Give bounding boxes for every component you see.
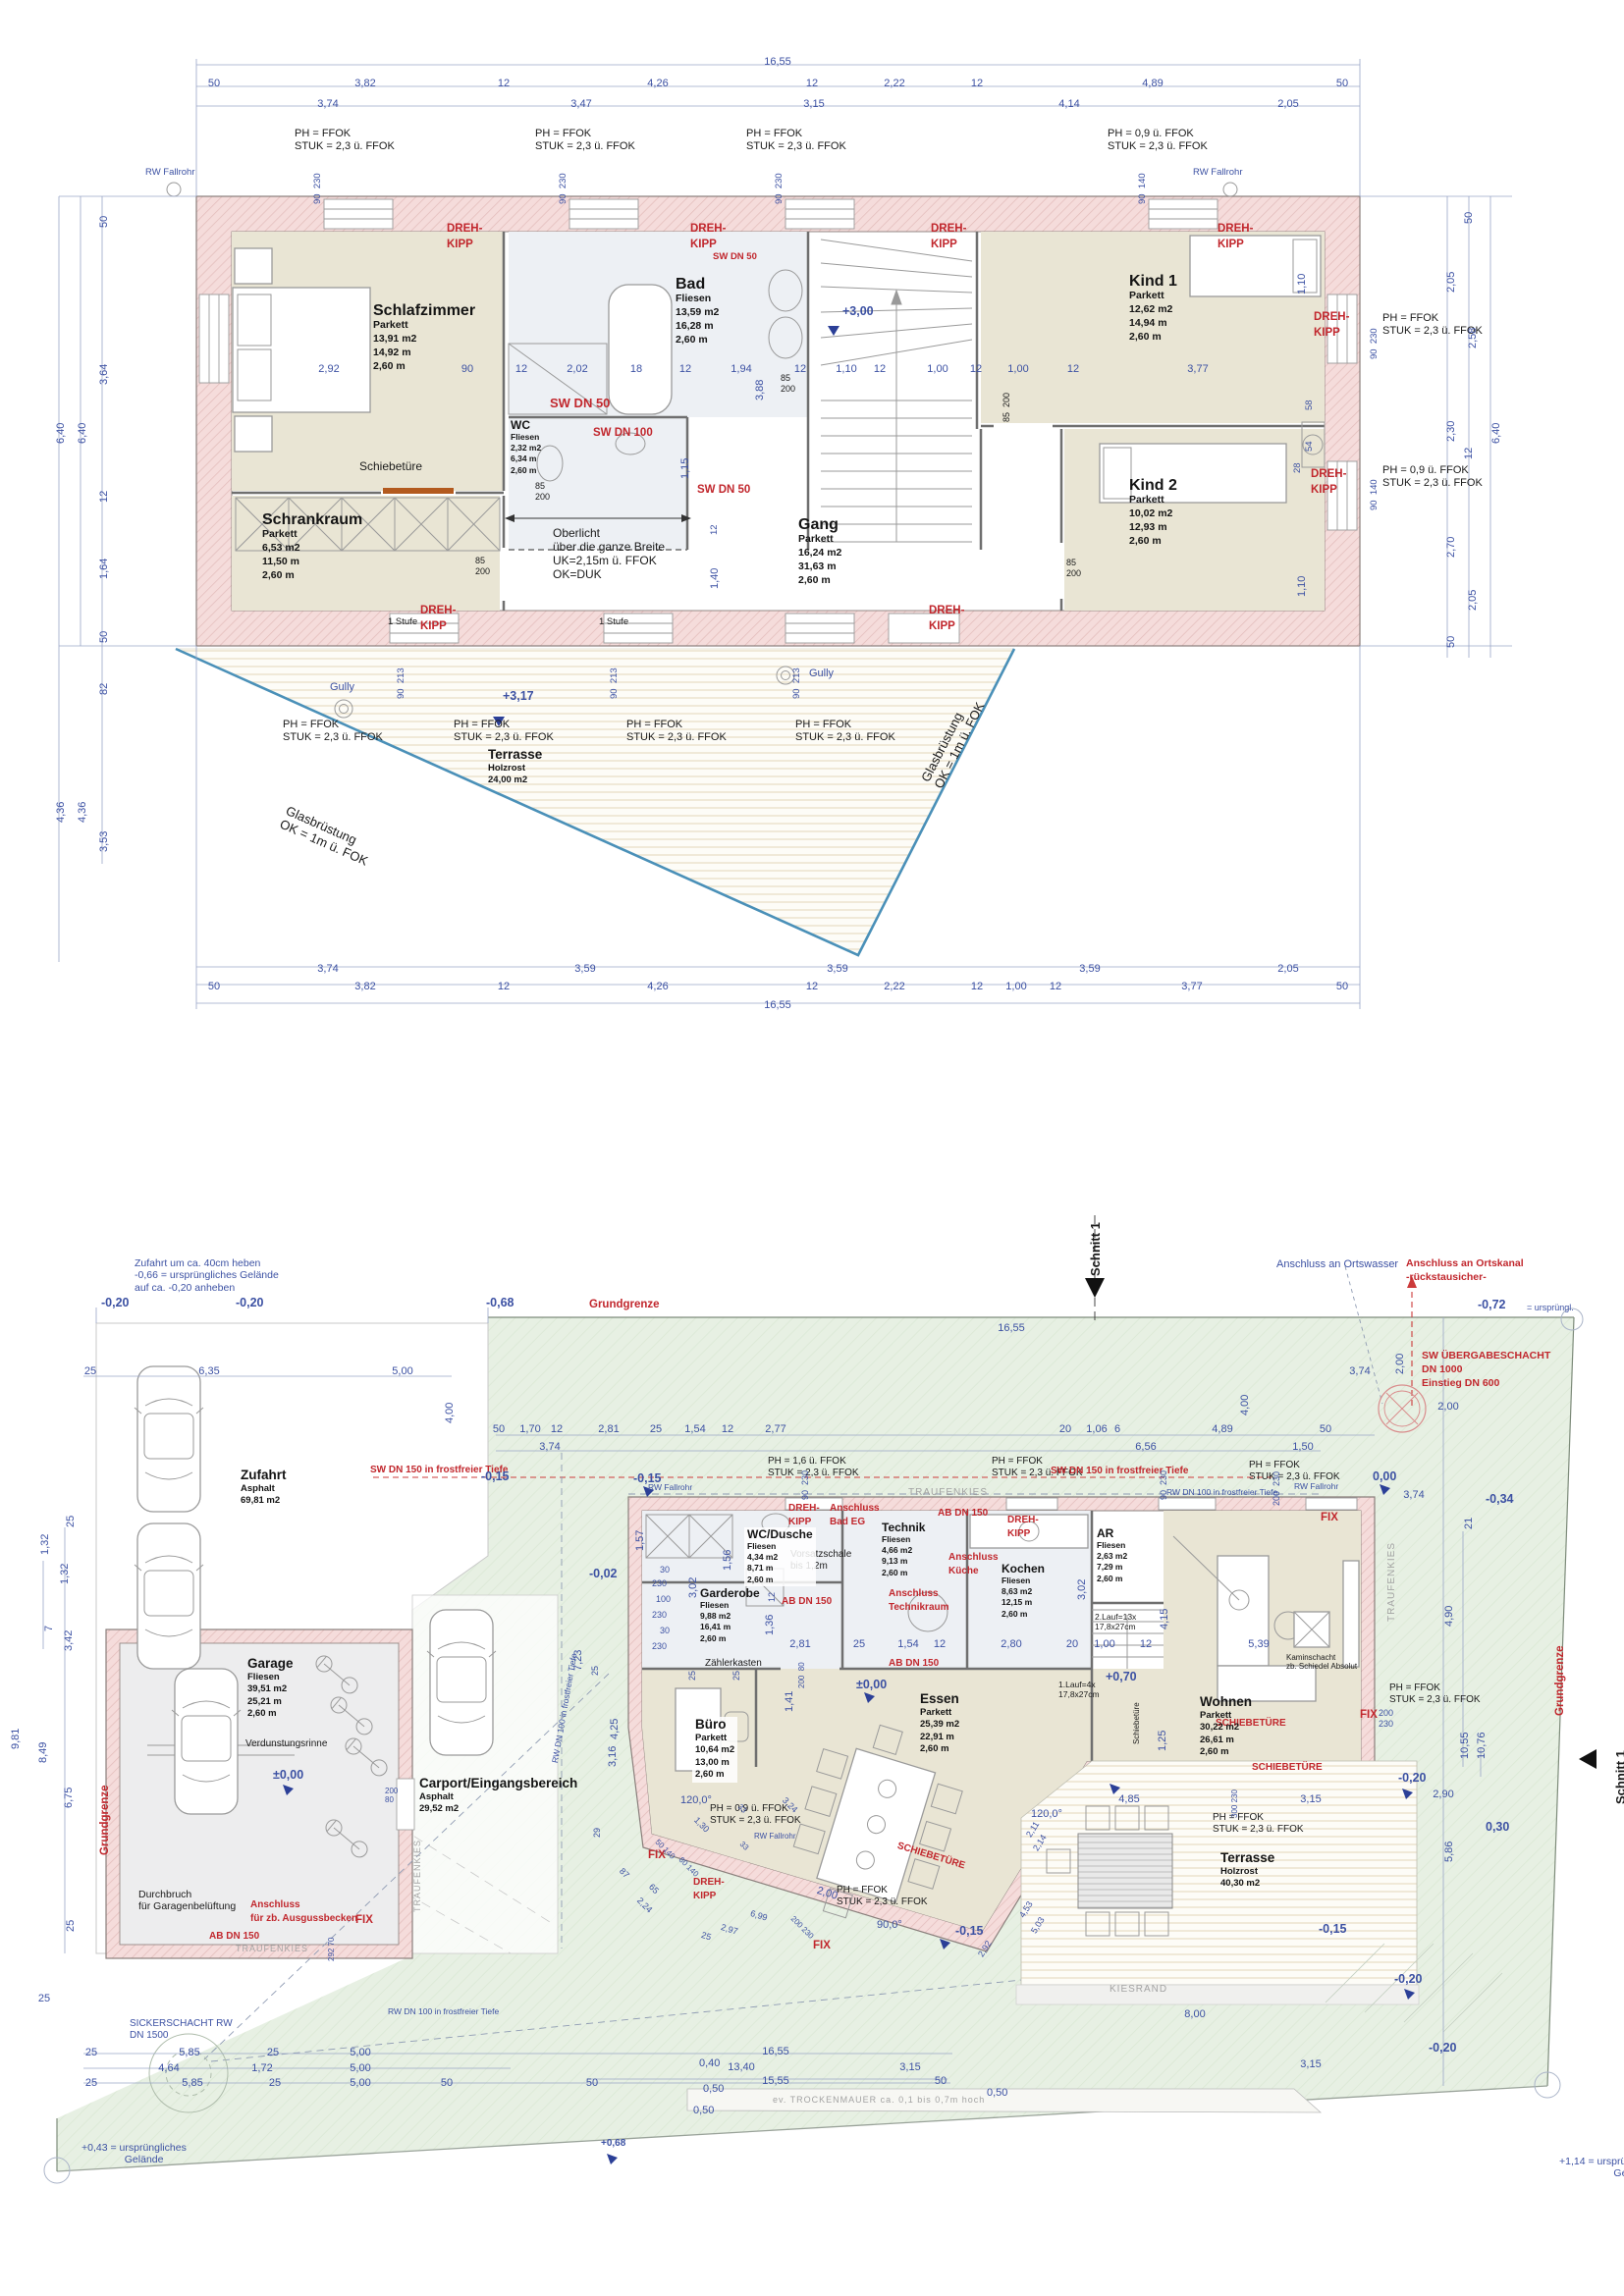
- room-name: Garderobe: [700, 1587, 760, 1600]
- room-spec: 10,64 m2: [695, 1744, 734, 1757]
- level: +0,68: [601, 2138, 625, 2150]
- trockenmauer: ev. TROCKENMAUER ca. 0,1 bis 0,7m hoch: [773, 2095, 985, 2106]
- room-name: Wohnen: [1200, 1695, 1252, 1710]
- dim: 200 230: [1272, 1471, 1282, 1506]
- dim: 2,70: [1445, 537, 1458, 558]
- room-spec: 31,63 m: [798, 561, 841, 574]
- level: -0,15: [481, 1469, 510, 1484]
- dim: 3,42: [63, 1630, 76, 1651]
- dim: 5,85: [182, 2077, 202, 2090]
- dim: 25: [85, 2047, 97, 2059]
- dim: 50: [208, 78, 220, 90]
- level: -0,15: [955, 1924, 984, 1939]
- room-spec: 11,50 m: [262, 556, 362, 569]
- note: 85 200: [535, 481, 550, 502]
- dim: 25: [650, 1423, 662, 1436]
- dim: 1,10: [836, 363, 856, 376]
- room-name: Kind 1: [1129, 273, 1177, 290]
- dim: 3,74: [317, 963, 338, 976]
- note: Schiebetüre: [1132, 1702, 1141, 1744]
- room-spec: 2,60 m: [798, 574, 841, 588]
- dim: 5,00: [392, 1365, 412, 1378]
- dim: 2,05: [1277, 98, 1298, 111]
- room-spec: Holzrost: [488, 763, 542, 775]
- dim: 29: [592, 1828, 603, 1838]
- room-name: Kind 2: [1129, 477, 1177, 494]
- dim: 50: [935, 2075, 947, 2088]
- room-label-wc-dusche: WC/DuscheFliesen4,34 m28,71 m2,60 m: [744, 1527, 816, 1586]
- dim: 4,15: [1159, 1609, 1171, 1629]
- dim: 12: [498, 981, 510, 993]
- dim: 0,50: [693, 2105, 714, 2117]
- dim: 3,16: [607, 1746, 620, 1767]
- dim: 1,41: [784, 1691, 796, 1712]
- room-spec: Fliesen: [247, 1672, 294, 1684]
- dim: 2,81: [789, 1638, 810, 1651]
- room-spec: 2,60 m: [695, 1769, 734, 1782]
- room-spec: 2,60 m: [920, 1743, 959, 1756]
- room-label-kind-2: Kind 2Parkett10,02 m212,93 m2,60 m: [1129, 477, 1177, 549]
- ph-note: PH = FFOK STUK = 2,3 ü. FFOK: [795, 719, 895, 744]
- dim: 6,35: [198, 1365, 219, 1378]
- dim: 15,55: [762, 2075, 789, 2088]
- level: -0,72: [1478, 1298, 1506, 1312]
- schnitt-triangle: [1085, 1278, 1105, 1298]
- dim: 3,15: [899, 2061, 920, 2074]
- ph-note: PH = FFOK STUK = 2,3 ü. FFOK: [535, 128, 635, 153]
- room-spec: 4,34 m2: [747, 1552, 813, 1563]
- dim: 30: [660, 1626, 670, 1636]
- dim: 6,40: [1490, 423, 1503, 444]
- dim: 3,47: [570, 98, 591, 111]
- dim: 2,05: [1445, 272, 1458, 293]
- dim: 25: [38, 1993, 50, 2005]
- dim: 30: [660, 1565, 670, 1575]
- dim: 6,40: [55, 423, 68, 444]
- room-spec: 2,60 m: [511, 465, 541, 476]
- dim: 50: [1320, 1423, 1331, 1436]
- room-spec: 16,24 m2: [798, 547, 841, 561]
- dim: 5,39: [1248, 1638, 1269, 1651]
- room-spec: Parkett: [1129, 494, 1177, 507]
- sw-dn-100: SW DN 100: [593, 426, 653, 442]
- dim: 12: [551, 1423, 563, 1436]
- dim: 3,74: [317, 98, 338, 111]
- angle: 120,0°: [680, 1794, 712, 1807]
- dim: 12: [874, 363, 886, 376]
- anschluss-technikraum: Anschluss Technikraum: [889, 1587, 949, 1614]
- ph-note: PH = FFOK STUK = 2,3 ü. FFOK: [283, 719, 383, 744]
- dim: 12: [934, 1638, 946, 1651]
- dim: 90 213: [609, 667, 620, 699]
- dim: 18: [630, 363, 642, 376]
- traufenkies: TRAUFENKIES: [1386, 1542, 1398, 1622]
- dim: 6,40: [77, 423, 89, 444]
- dreh-kipp: DREH- KIPP: [1218, 222, 1253, 252]
- room-name: Schrankraum: [262, 511, 362, 528]
- traufenkies: TRAUFENKIES: [412, 1840, 423, 1912]
- anschluss-ausgussbecken: Anschluss für zb. Ausgussbecken: [250, 1898, 357, 1925]
- dreh-kipp: DREH- KIPP: [693, 1876, 725, 1902]
- schnitt-1: Schnitt 1: [1613, 1750, 1624, 1804]
- dim: 50: [493, 1423, 505, 1436]
- dim: 3,15: [803, 98, 824, 111]
- gully: Gully: [330, 681, 354, 694]
- room-spec: Parkett: [262, 528, 362, 542]
- room-label-schrankraum: SchrankraumParkett6,53 m211,50 m2,60 m: [262, 511, 362, 583]
- dim: 200 80: [797, 1662, 806, 1688]
- room-spec: Parkett: [373, 319, 475, 333]
- level: ±0,00: [856, 1678, 887, 1692]
- kiesrand: KIESRAND: [1110, 1984, 1167, 1996]
- dim: 3,74: [539, 1441, 560, 1454]
- room-spec: 8,71 m: [747, 1563, 813, 1574]
- dim: 300 230: [1230, 1789, 1239, 1818]
- dim: 50: [98, 216, 111, 228]
- dim: 25: [269, 2077, 281, 2090]
- dim: 5,00: [350, 2047, 370, 2059]
- dim: 4,25: [609, 1719, 622, 1739]
- room-spec: Asphalt: [419, 1791, 577, 1804]
- room-spec: 4,66 m2: [882, 1545, 925, 1556]
- dim: 3,59: [574, 963, 595, 976]
- dim: 25: [84, 1365, 96, 1378]
- dim: 3,59: [827, 963, 847, 976]
- dim: 4,00: [444, 1403, 457, 1423]
- dim: 16,55: [762, 2046, 789, 2058]
- dreh-kipp: DREH- KIPP: [447, 222, 482, 252]
- dim: 16,55: [764, 56, 791, 69]
- ph-note: PH = 1,6 ü. FFOK STUK = 2,3 ü. FFOK: [768, 1456, 859, 1479]
- dim: 3,15: [1300, 1793, 1321, 1806]
- dim: 1,70: [519, 1423, 540, 1436]
- dim: 3,59: [1079, 963, 1100, 976]
- dim: 4,14: [1058, 98, 1079, 111]
- ph-note: PH = FFOK STUK = 2,3 ü. FFOK: [1213, 1812, 1304, 1836]
- room-label-terrasse-eg: TerrasseHolzrost40,30 m2: [1220, 1851, 1274, 1891]
- dim: 8,00: [1184, 2008, 1205, 2021]
- dim: 3,02: [687, 1577, 700, 1598]
- dim: 90 230: [558, 173, 568, 204]
- ph-note: PH = 0,9 ü. FFOK STUK = 2,3 ü. FFOK: [1108, 128, 1208, 153]
- dim: = ursprüngl.: [1527, 1303, 1574, 1313]
- dim: 50: [1336, 981, 1348, 993]
- room-name: Garage: [247, 1657, 294, 1672]
- dim: 1,15: [679, 458, 692, 479]
- level: -0,68: [486, 1296, 514, 1310]
- anschluss-ortswasser: Anschluss an Ortswasser: [1276, 1258, 1398, 1271]
- traufenkies: TRAUFENKIES: [236, 1944, 308, 1954]
- room-label-schlafzimmer: SchlafzimmerParkett13,91 m214,92 m2,60 m: [373, 302, 475, 374]
- room-name: Kochen: [1001, 1563, 1045, 1575]
- dreh-kipp: DREH- KIPP: [690, 222, 726, 252]
- dim: 12: [98, 491, 111, 503]
- kiesrand-band: [1016, 1985, 1419, 2004]
- room-spec: 2,63 m2: [1097, 1551, 1127, 1562]
- room-spec: 2,60 m: [262, 569, 362, 583]
- room-spec: 24,00 m2: [488, 774, 542, 787]
- room-label-carport: Carport/EingangsbereichAsphalt29,52 m2: [419, 1777, 577, 1816]
- room-spec: 9,13 m: [882, 1556, 925, 1567]
- room-spec: Parkett: [695, 1733, 734, 1745]
- dim: 25: [731, 1671, 742, 1681]
- grundgrenze: Grundgrenze: [1553, 1645, 1569, 1716]
- dim: 12: [970, 363, 982, 376]
- room-spec: 6,53 m2: [262, 542, 362, 556]
- fix-window: FIX: [813, 1939, 831, 1954]
- dim: 12: [1140, 1638, 1152, 1651]
- rw-fallrohr: RW Fallrohr: [1294, 1481, 1338, 1491]
- traufenkies: TRAUFENKIES: [908, 1487, 988, 1499]
- dim: 6,75: [63, 1788, 76, 1808]
- room-label-ar: ARFliesen2,63 m27,29 m2,60 m: [1097, 1527, 1127, 1584]
- ph-note: PH = FFOK STUK = 2,3 ü. FFOK: [746, 128, 846, 153]
- dim: 20: [1066, 1638, 1078, 1651]
- rw-fallrohr: RW Fallrohr: [754, 1832, 796, 1841]
- dim: 1,10: [1296, 576, 1309, 597]
- dim: 90 140: [1137, 173, 1148, 204]
- rw-fallrohr: RW Fallrohr: [1193, 167, 1243, 178]
- dreh-kipp: DREH- KIPP: [1007, 1514, 1039, 1540]
- room-name: AR: [1097, 1527, 1127, 1540]
- dim: 12: [794, 363, 806, 376]
- dim: 1,00: [1007, 363, 1028, 376]
- dim: 2,77: [765, 1423, 785, 1436]
- dim: 2,22: [884, 981, 904, 993]
- room-spec: 12,15 m: [1001, 1597, 1045, 1608]
- uebergabeschacht: SW ÜBERGABESCHACHT DN 1000 Einstieg DN 6…: [1422, 1349, 1550, 1391]
- dim: 21: [1463, 1518, 1476, 1529]
- room-name: Zufahrt: [241, 1468, 287, 1483]
- dim: 25: [687, 1671, 698, 1681]
- room-spec: 39,51 m2: [247, 1683, 294, 1696]
- dim: 25: [267, 2047, 279, 2059]
- dim: 4,85: [1118, 1793, 1139, 1806]
- dim: 2,00: [1394, 1354, 1407, 1374]
- ab-dn-150: AB DN 150: [889, 1657, 939, 1671]
- dreh-kipp: DREH- KIPP: [929, 604, 964, 634]
- dim: 90 230: [774, 173, 785, 204]
- note: 2.Lauf=13x 17,8x27cm: [1095, 1612, 1136, 1631]
- dim: 1,00: [1005, 981, 1026, 993]
- terrasse-og-deck: [176, 649, 1014, 955]
- dim: 90 213: [791, 667, 802, 699]
- dim: 5,00: [350, 2062, 370, 2075]
- room-spec: Fliesen: [700, 1600, 760, 1611]
- dim: 4,26: [647, 78, 668, 90]
- dim: 58: [1304, 400, 1315, 410]
- dim: 2,92: [318, 363, 339, 376]
- dim: 12: [709, 524, 720, 535]
- room-label-kind-1: Kind 1Parkett12,62 m214,94 m2,60 m: [1129, 273, 1177, 345]
- schnitt-triangle: [1579, 1749, 1597, 1769]
- dim: 2,02: [567, 363, 587, 376]
- durchbruch-note: Durchbruch für Garagenbelüftung: [138, 1889, 236, 1913]
- room-spec: 13,59 m2: [676, 306, 719, 320]
- dim: 25: [590, 1666, 601, 1676]
- zaehlerkasten: Zählerkasten: [705, 1658, 762, 1670]
- level: +0,70: [1106, 1670, 1137, 1684]
- dim: 1,32: [39, 1534, 52, 1555]
- rw-dn-100: RW DN 100 in frostfreier Tiefe: [388, 2006, 499, 2016]
- dim: 1,56: [722, 1550, 734, 1571]
- dim: 292 70: [327, 1938, 336, 1961]
- dim: 50: [1336, 78, 1348, 90]
- dim: 2,05: [1277, 963, 1298, 976]
- room-spec: 2,60 m: [247, 1708, 294, 1721]
- dreh-kipp: DREH- KIPP: [931, 222, 966, 252]
- ph-note: PH = FFOK STUK = 2,3 ü. FFOK: [454, 719, 554, 744]
- ab-dn-150: AB DN 150: [938, 1507, 988, 1521]
- dim: 16,55: [764, 999, 791, 1012]
- dim: 28: [1292, 462, 1303, 473]
- dim: 1,54: [897, 1638, 918, 1651]
- ph-note: PH = 0,9 ü. FFOK STUK = 2,3 ü. FFOK: [1382, 464, 1483, 490]
- fix-window: FIX: [1360, 1708, 1378, 1724]
- dim: 4,26: [647, 981, 668, 993]
- dim: 6: [1114, 1423, 1120, 1436]
- dim: 2,81: [598, 1423, 619, 1436]
- dim: 200 80: [385, 1787, 398, 1805]
- room-spec: Fliesen: [747, 1541, 813, 1552]
- dim: 25: [853, 1638, 865, 1651]
- level: -0,02: [589, 1567, 618, 1581]
- dim: 1,06: [1086, 1423, 1107, 1436]
- room-label-essen: EssenParkett25,39 m222,91 m2,60 m: [920, 1692, 959, 1756]
- room-spec: 2,60 m: [373, 360, 475, 374]
- rw-fallrohr: RW Fallrohr: [145, 167, 195, 178]
- dim: 1,72: [251, 2062, 272, 2075]
- room-label-gang: GangParkett16,24 m231,63 m2,60 m: [798, 516, 841, 588]
- room-spec: 25,21 m: [247, 1696, 294, 1709]
- dim: 25: [65, 1920, 78, 1932]
- ab-dn-150: AB DN 150: [782, 1595, 832, 1609]
- dim: 5,86: [1443, 1842, 1456, 1862]
- dim: 82: [98, 683, 111, 695]
- dim: 25: [65, 1516, 78, 1527]
- dim: 3,77: [1187, 363, 1208, 376]
- dim: 2,90: [1433, 1789, 1453, 1801]
- dim: 12: [806, 981, 818, 993]
- level: -0,20: [1429, 2041, 1457, 2056]
- room-label-wc: WCFliesen2,32 m26,34 m2,60 m: [511, 419, 541, 476]
- room-spec: 12,62 m2: [1129, 303, 1177, 317]
- dim: 6,56: [1135, 1441, 1156, 1454]
- dim: 50: [1445, 636, 1458, 648]
- level: ±0,00: [273, 1768, 303, 1783]
- ph-note: PH = FFOK STUK = 2,3 ü. FFOK: [1389, 1682, 1481, 1706]
- dreh-kipp: DREH- KIPP: [788, 1502, 820, 1528]
- dim: 12: [1463, 448, 1476, 459]
- dim: 230: [652, 1578, 667, 1589]
- room-spec: 2,60 m: [1200, 1746, 1252, 1759]
- dim: 1,00: [1094, 1638, 1114, 1651]
- room-spec: 9,88 m2: [700, 1611, 760, 1622]
- schiebetuere: SCHIEBETÜRE: [1252, 1761, 1323, 1775]
- room-name: Technik: [882, 1522, 925, 1534]
- room-spec: 12,93 m: [1129, 521, 1177, 535]
- room-name: WC/Dusche: [747, 1528, 813, 1541]
- level: +3,17: [503, 689, 534, 704]
- dim: 2,30: [1445, 421, 1458, 442]
- room-name: WC: [511, 419, 541, 432]
- schiebetuere: Schiebetüre: [359, 459, 422, 473]
- dim: 1,10: [1296, 274, 1309, 294]
- level: +3,00: [842, 304, 874, 319]
- room-name: Terrasse: [1220, 1851, 1274, 1866]
- dim: 12: [767, 1592, 778, 1602]
- room-spec: 26,61 m: [1200, 1735, 1252, 1747]
- room-spec: 40,30 m2: [1220, 1878, 1274, 1891]
- room-spec: Fliesen: [1097, 1540, 1127, 1551]
- dim: 230: [652, 1610, 667, 1621]
- dim: 1,36: [764, 1615, 777, 1635]
- dim: 2,00: [1437, 1401, 1458, 1414]
- ph-note: PH = FFOK STUK = 2,3 ü. FFOK: [626, 719, 727, 744]
- dreh-kipp: DREH- KIPP: [1314, 310, 1349, 341]
- room-spec: Parkett: [1200, 1710, 1252, 1723]
- fix-window: FIX: [355, 1913, 373, 1929]
- room-spec: 16,28 m: [676, 320, 719, 334]
- level: 0,30: [1486, 1820, 1509, 1835]
- grundgrenze: Grundgrenze: [589, 1298, 660, 1313]
- dim: 2,05: [1467, 590, 1480, 611]
- kaminschacht: Kaminschacht zb. Schiedel Absolut: [1286, 1653, 1357, 1672]
- dim: 1,00: [927, 363, 947, 376]
- grundgrenze: Grundgrenze: [98, 1785, 114, 1855]
- level: +1,14 = ursprüngliches Gelände: [1559, 2156, 1624, 2180]
- ab-dn-150: AB DN 150: [209, 1930, 259, 1944]
- room-spec: 2,60 m: [1129, 535, 1177, 549]
- note: 85 200: [475, 556, 490, 576]
- room-spec: 10,02 m2: [1129, 507, 1177, 521]
- dim: 12: [971, 78, 983, 90]
- room-spec: 2,60 m: [676, 334, 719, 347]
- dim: 3,74: [1403, 1489, 1424, 1502]
- rw-dn-100: RW DN 100 in frostfreier Tiefe: [1166, 1487, 1277, 1497]
- room-spec: 2,32 m2: [511, 443, 541, 454]
- dim: 4,89: [1142, 78, 1163, 90]
- room-name: Schlafzimmer: [373, 302, 475, 319]
- dim: 13,40: [728, 2061, 755, 2074]
- ph-note: PH = FFOK STUK = 2,3 ü. FFOK: [1249, 1460, 1340, 1483]
- note: 85 200: [781, 373, 795, 394]
- level: -0,20: [1394, 1972, 1423, 1987]
- level: -0,20: [236, 1296, 264, 1310]
- dim: 1,94: [731, 363, 751, 376]
- dim: 200 230: [1379, 1708, 1393, 1729]
- dim: 16,55: [998, 1322, 1025, 1335]
- room-label-zufahrt: ZufahrtAsphalt69,81 m2: [241, 1468, 287, 1508]
- dim: 90 213: [396, 667, 406, 699]
- room-spec: 29,52 m2: [419, 1803, 577, 1816]
- anschluss-ortskanal: Anschluss an Ortskanal -rückstausicher-: [1406, 1256, 1524, 1284]
- room-spec: 22,91 m: [920, 1732, 959, 1744]
- level: 0,00: [1373, 1469, 1396, 1484]
- zufahrt-note: Zufahrt um ca. 40cm heben -0,66 = ursprü…: [135, 1257, 279, 1294]
- room-label-terrasse-og: TerrasseHolzrost24,00 m2: [488, 748, 542, 787]
- dim: 4,89: [1212, 1423, 1232, 1436]
- dim: 54: [1304, 441, 1315, 452]
- dim: 0,40: [699, 2057, 720, 2070]
- room-spec: Parkett: [798, 533, 841, 547]
- dim: 230: [652, 1641, 667, 1652]
- verdunstungsrinne: Verdunstungsrinne: [245, 1738, 327, 1750]
- sw-dn-50: SW DN 50: [713, 251, 757, 264]
- fix-window: FIX: [1321, 1511, 1338, 1526]
- dim: 4,36: [77, 802, 89, 823]
- dim: 50: [208, 981, 220, 993]
